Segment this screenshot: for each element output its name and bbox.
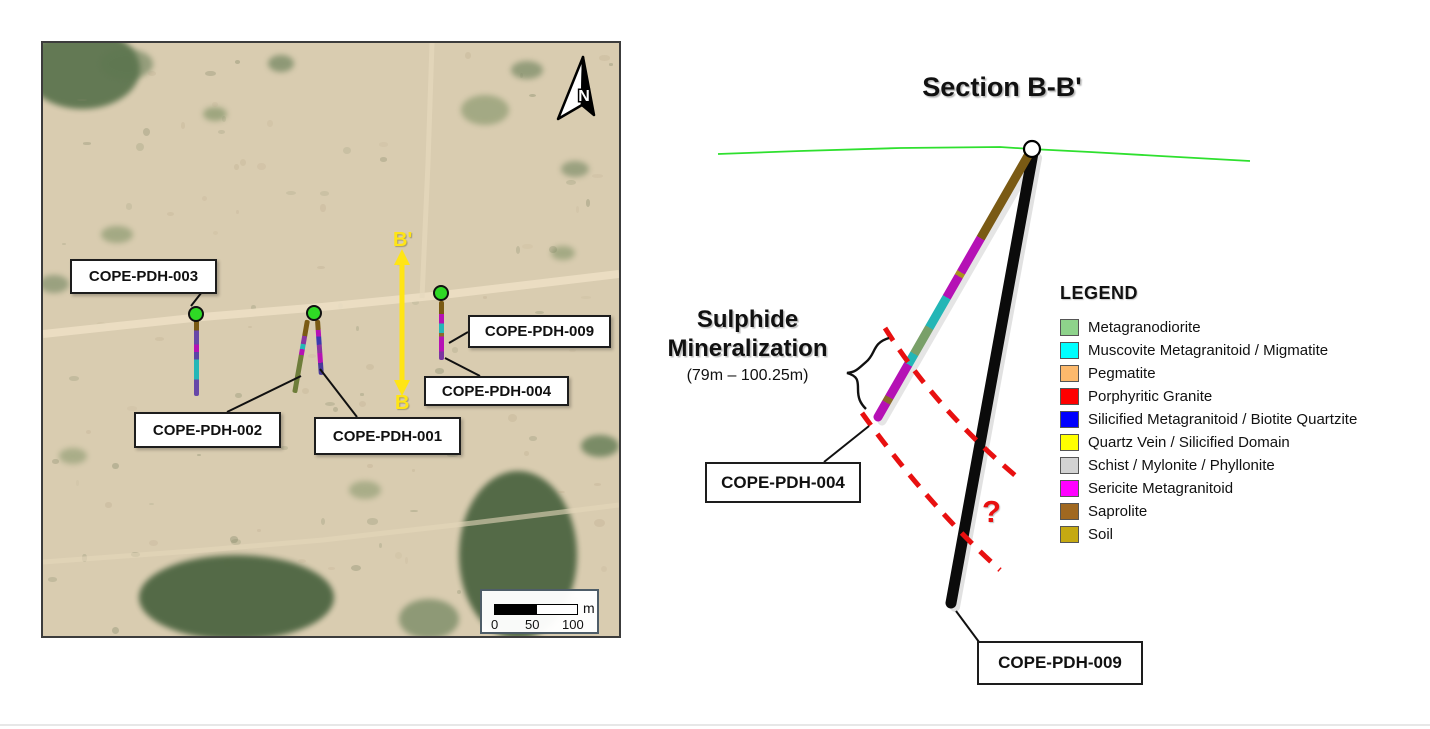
legend-swatch bbox=[1060, 526, 1079, 543]
legend-item-label: Porphyritic Granite bbox=[1088, 388, 1212, 405]
sulphide-annotation-line1: Sulphide bbox=[655, 305, 840, 334]
interval-bracket bbox=[847, 338, 889, 409]
scale-tick-50: 50 bbox=[525, 617, 539, 632]
legend-item-label: Sericite Metagranitoid bbox=[1088, 480, 1233, 497]
scale-bar-black-segment bbox=[494, 604, 536, 615]
legend-item-label: Soil bbox=[1088, 526, 1113, 543]
question-mark: ? bbox=[982, 494, 1001, 530]
legend-swatch bbox=[1060, 388, 1079, 405]
legend-item: Porphyritic Granite bbox=[1060, 385, 1420, 408]
page-bottom-divider bbox=[0, 724, 1430, 726]
sulphide-annotation-line2: Mineralization bbox=[655, 334, 840, 363]
map-label-pdh001: COPE-PDH-001 bbox=[314, 417, 461, 455]
legend-item-label: Metagranodiorite bbox=[1088, 319, 1201, 336]
section-title: Section B-B' bbox=[852, 72, 1152, 103]
topo-surface-line bbox=[718, 147, 1250, 161]
legend-swatch bbox=[1060, 480, 1079, 497]
satellite-map-panel: N B' B COPE-PDH-003 COPE-PDH-002 COPE-PD… bbox=[41, 41, 621, 638]
legend-item-label: Schist / Mylonite / Phyllonite bbox=[1088, 457, 1275, 474]
legend-item: Pegmatite bbox=[1060, 362, 1420, 385]
legend-item: Soil bbox=[1060, 523, 1420, 546]
legend-item-label: Saprolite bbox=[1088, 503, 1147, 520]
legend-item: Quartz Vein / Silicified Domain bbox=[1060, 431, 1420, 454]
legend-item: Schist / Mylonite / Phyllonite bbox=[1060, 454, 1420, 477]
mineralized-zone-upper-dash bbox=[885, 328, 1017, 477]
scale-bar: m 0 50 100 bbox=[480, 589, 599, 634]
legend-item-label: Muscovite Metagranitoid / Migmatite bbox=[1088, 342, 1328, 359]
section-label-pdh009: COPE-PDH-009 bbox=[977, 641, 1143, 685]
north-arrow-icon: N bbox=[558, 57, 594, 119]
map-label-pdh004: COPE-PDH-004 bbox=[424, 376, 569, 406]
legend-swatch bbox=[1060, 503, 1079, 520]
scale-tick-100: 100 bbox=[562, 617, 584, 632]
legend-item-label: Pegmatite bbox=[1088, 365, 1156, 382]
legend-item: Saprolite bbox=[1060, 500, 1420, 523]
section-hole-pdh004 bbox=[878, 154, 1029, 417]
map-label-pdh009: COPE-PDH-009 bbox=[468, 315, 611, 348]
legend-item: Metagranodiorite bbox=[1060, 316, 1420, 339]
figure-drill-map-and-section: { "map": { "north_label": "N", "section_… bbox=[0, 0, 1430, 729]
legend-items: MetagranodioriteMuscovite Metagranitoid … bbox=[1060, 316, 1420, 546]
legend-swatch bbox=[1060, 411, 1079, 428]
collar-marker bbox=[1024, 141, 1040, 157]
legend-item: Sericite Metagranitoid bbox=[1060, 477, 1420, 500]
scale-bar-white-segment bbox=[536, 604, 578, 615]
legend-swatch bbox=[1060, 457, 1079, 474]
section-label-pdh004: COPE-PDH-004 bbox=[705, 462, 861, 503]
legend-item-label: Quartz Vein / Silicified Domain bbox=[1088, 434, 1290, 451]
section-line-end-label: B bbox=[395, 392, 409, 415]
scale-tick-0: 0 bbox=[491, 617, 498, 632]
mineralized-zone-lower-dash bbox=[862, 413, 1000, 570]
sulphide-annotation: Sulphide Mineralization (79m – 100.25m) bbox=[655, 305, 840, 385]
map-label-pdh003: COPE-PDH-003 bbox=[70, 259, 217, 294]
legend-swatch bbox=[1060, 319, 1079, 336]
legend-item: Silicified Metagranitoid / Biotite Quart… bbox=[1060, 408, 1420, 431]
map-label-pdh002: COPE-PDH-002 bbox=[134, 412, 281, 448]
sulphide-interval: (79m – 100.25m) bbox=[655, 367, 840, 385]
section-line-start-label: B' bbox=[393, 229, 412, 252]
legend-item: Muscovite Metagranitoid / Migmatite bbox=[1060, 339, 1420, 362]
section-hole-pdh009 bbox=[951, 153, 1033, 603]
legend-title: LEGEND bbox=[1060, 283, 1420, 304]
legend-swatch bbox=[1060, 434, 1079, 451]
legend-swatch bbox=[1060, 365, 1079, 382]
legend: LEGEND MetagranodioriteMuscovite Metagra… bbox=[1060, 283, 1420, 546]
legend-item-label: Silicified Metagranitoid / Biotite Quart… bbox=[1088, 411, 1357, 428]
scale-unit: m bbox=[583, 600, 595, 616]
legend-swatch bbox=[1060, 342, 1079, 359]
svg-text:N: N bbox=[578, 88, 590, 105]
